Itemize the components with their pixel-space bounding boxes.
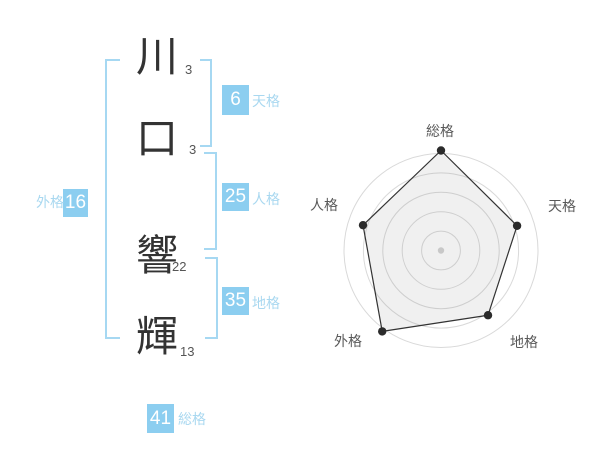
tenkaku-label: 天格: [252, 94, 280, 109]
stroke-count-2: 3: [189, 143, 196, 157]
radar-label-gaikaku: 外格: [334, 334, 362, 349]
jinkaku-bracket: [204, 152, 217, 250]
tenkaku-bracket: [200, 59, 212, 147]
radar-label-soukaku: 総格: [426, 124, 454, 139]
radar-label-chikaku: 地格: [510, 335, 538, 350]
tenkaku-value-badge: 6: [222, 85, 249, 115]
chikaku-value-badge: 35: [222, 287, 249, 315]
chikaku-label: 地格: [252, 296, 280, 311]
gaikaku-bracket: [105, 59, 120, 339]
jinkaku-label: 人格: [252, 192, 280, 207]
stroke-count-4: 13: [180, 345, 194, 359]
gaikaku-value-badge: 16: [63, 189, 88, 217]
chikaku-bracket: [205, 257, 218, 339]
name-char-2: 口: [127, 118, 187, 160]
stroke-count-1: 3: [185, 63, 192, 77]
stroke-count-3: 22: [172, 260, 186, 274]
soukaku-label: 総格: [178, 412, 206, 427]
radar-label-jinkaku: 人格: [310, 198, 338, 213]
name-char-1: 川: [127, 36, 187, 78]
gaikaku-label: 外格: [36, 195, 64, 210]
name-char-4: 輝: [127, 316, 187, 358]
radar-label-tenkaku: 天格: [548, 199, 576, 214]
jinkaku-value-badge: 25: [222, 183, 249, 211]
name-fortune-panel: 川 口 響 輝 3 3 22 13 6 25 35 16 41 天格 人格 地格…: [0, 0, 600, 470]
soukaku-value-badge: 41: [147, 404, 174, 433]
